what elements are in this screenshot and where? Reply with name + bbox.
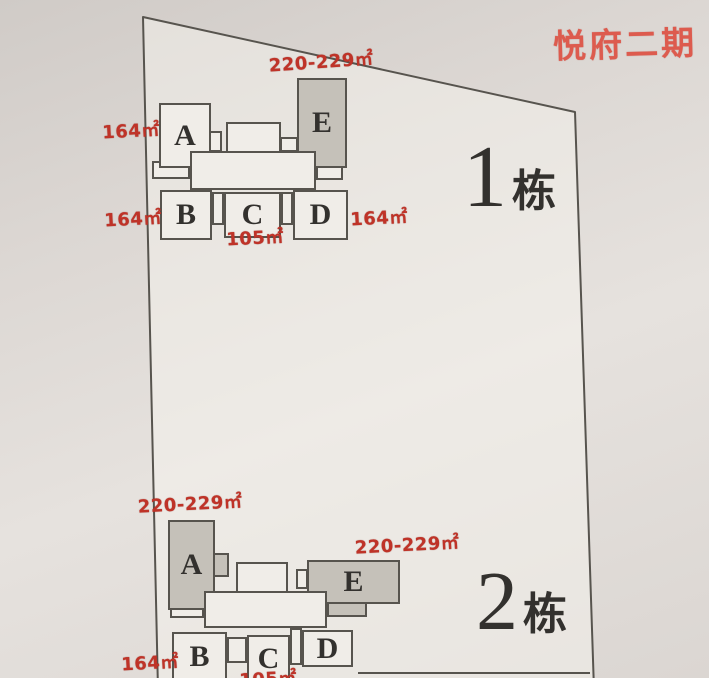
b2-unit-b: B [172,632,227,678]
b2-area-c-bottom: 105㎡ [239,664,298,678]
b1-core-block [226,122,281,153]
b2-name: 2 栋 [476,568,567,642]
b1-name: 1 栋 [463,142,556,219]
b1-strip-bc [212,192,224,225]
b2-area-b-left: 164㎡ [121,648,180,677]
b1-unit-b: B [160,190,212,240]
b2-area-e-top: 220-229㎡ [354,528,460,559]
b1-area-a-left: 164㎡ [102,116,161,145]
project-title: 悦府二期 [552,16,697,68]
site-plan-photo: 悦府二期 A E B C D 220-229㎡ 164㎡ 164㎡ 164㎡ 1… [0,0,709,678]
b2-strip-bc [227,637,247,663]
b1-area-d-right: 164㎡ [350,203,409,232]
b1-corridor [190,151,316,190]
b1-area-b-left: 164㎡ [104,204,163,233]
b1-strip-cd [281,192,293,225]
b2-unit-d-label: D [317,634,339,664]
b2-name-number: 2 [476,568,518,637]
b2-unit-e-label: E [343,567,363,597]
b2-unit-a-label: A [181,550,203,580]
b2-unit-b-label: B [189,642,209,672]
b2-tab-a-step [213,553,229,577]
b2-unit-e-ext [327,602,367,617]
b1-unit-a-label: A [174,121,196,151]
b2-strip-cd [290,628,302,665]
b1-name-number: 1 [463,142,507,214]
b2-name-suffix: 栋 [523,578,567,642]
b1-unit-e-label: E [312,108,332,138]
b1-name-suffix: 栋 [512,155,556,219]
b2-core-block [236,562,288,594]
b1-unit-d: D [293,190,348,240]
b1-unit-b-label: B [176,200,196,230]
b1-area-c-bottom: 105㎡ [226,223,285,252]
b2-unit-d: D [302,630,353,667]
b1-unit-d-label: D [310,200,332,230]
b1-tab-e [280,137,298,152]
b2-area-a-top: 220-229㎡ [137,487,243,518]
b2-corridor [204,591,327,628]
